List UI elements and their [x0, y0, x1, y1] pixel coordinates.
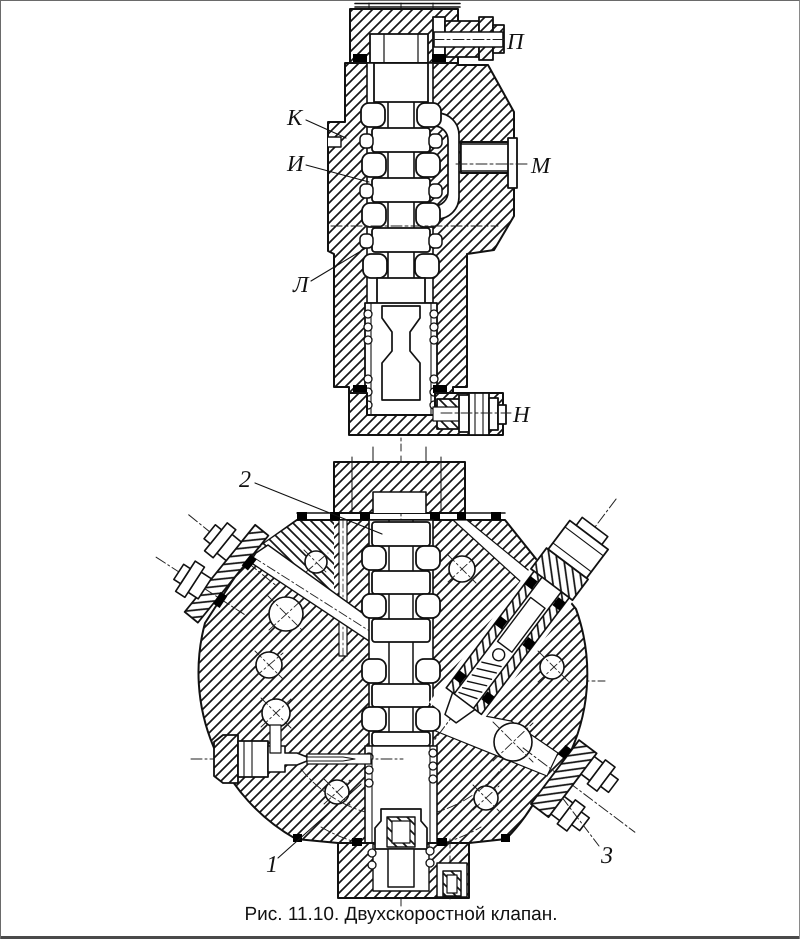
svg-text:М: М	[530, 153, 552, 178]
svg-text:Л: Л	[292, 272, 310, 297]
svg-text:2: 2	[239, 467, 251, 493]
svg-text:К: К	[286, 105, 304, 130]
svg-text:П: П	[506, 29, 525, 54]
svg-text:1: 1	[266, 852, 278, 878]
svg-text:И: И	[286, 151, 305, 176]
svg-text:Н: Н	[512, 402, 531, 427]
svg-text:3: 3	[600, 843, 613, 869]
